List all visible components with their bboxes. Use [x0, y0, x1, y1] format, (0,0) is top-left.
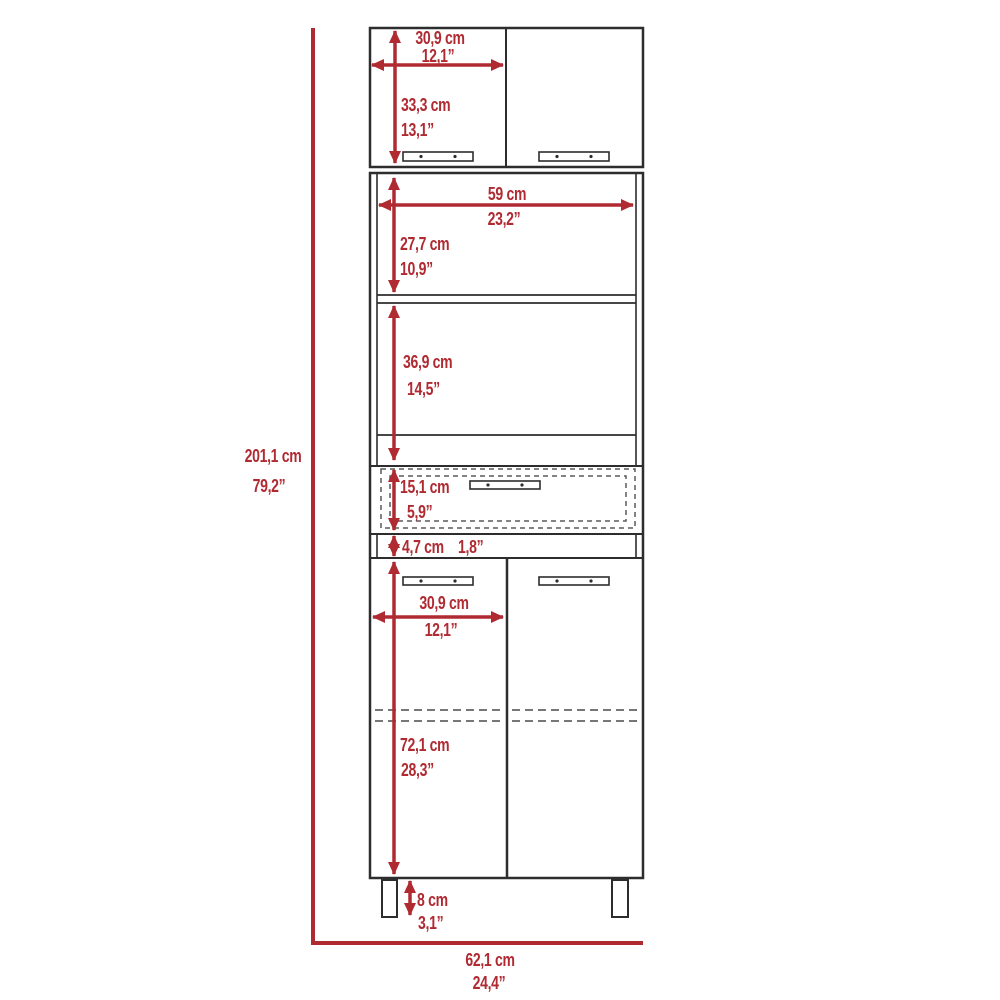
dim-bottom-door-width-cm: 30,9 cm [386, 594, 503, 612]
dim-open-top-height-in: 10,9” [400, 260, 433, 278]
dim-drawer-height-in: 5,9” [407, 503, 432, 521]
dim-leg-height-in: 3,1” [418, 914, 443, 932]
dim-overall-height-in: 79,2” [211, 477, 328, 495]
bottom-right-door-handle [539, 577, 609, 585]
dim-top-door-width-in: 12,1” [380, 47, 497, 65]
dim-open-width-in: 23,2” [446, 210, 563, 228]
dim-leg-height-cm: 8 cm [417, 891, 448, 909]
dim-drawer-height-cm: 15,1 cm [400, 478, 449, 496]
top-right-door-handle [539, 152, 609, 161]
bottom-left-door-handle [403, 577, 473, 585]
dim-open-width-cm: 59 cm [449, 185, 566, 203]
left-leg [382, 880, 397, 917]
dim-divider-height-in: 1,8” [458, 538, 483, 556]
dim-open-bottom-height-cm: 36,9 cm [403, 353, 452, 371]
dim-overall-width-in: 24,4” [431, 974, 548, 992]
dim-overall-height-cm: 201,1 cm [215, 447, 332, 465]
dim-open-bottom-height-in: 14,5” [407, 380, 440, 398]
dim-top-door-height-cm: 33,3 cm [401, 96, 450, 114]
dim-top-door-width-cm: 30,9 cm [382, 29, 499, 47]
dim-open-top-height-cm: 27,7 cm [400, 235, 449, 253]
drawer-handle [470, 481, 540, 489]
right-leg [612, 880, 628, 917]
dimension-diagram: 30,9 cm 12,1” 33,3 cm 13,1” 59 cm 23,2” … [0, 0, 1000, 1000]
dim-bottom-door-height-in: 28,3” [401, 761, 434, 779]
dim-divider-height-cm: 4,7 cm [402, 538, 444, 556]
top-left-door-handle [403, 152, 473, 161]
dim-top-door-height-in: 13,1” [401, 121, 434, 139]
dim-overall-width-cm: 62,1 cm [432, 951, 549, 969]
diagram-linework [0, 0, 1000, 1000]
dim-bottom-door-height-cm: 72,1 cm [400, 736, 449, 754]
dim-bottom-door-width-in: 12,1” [383, 621, 500, 639]
